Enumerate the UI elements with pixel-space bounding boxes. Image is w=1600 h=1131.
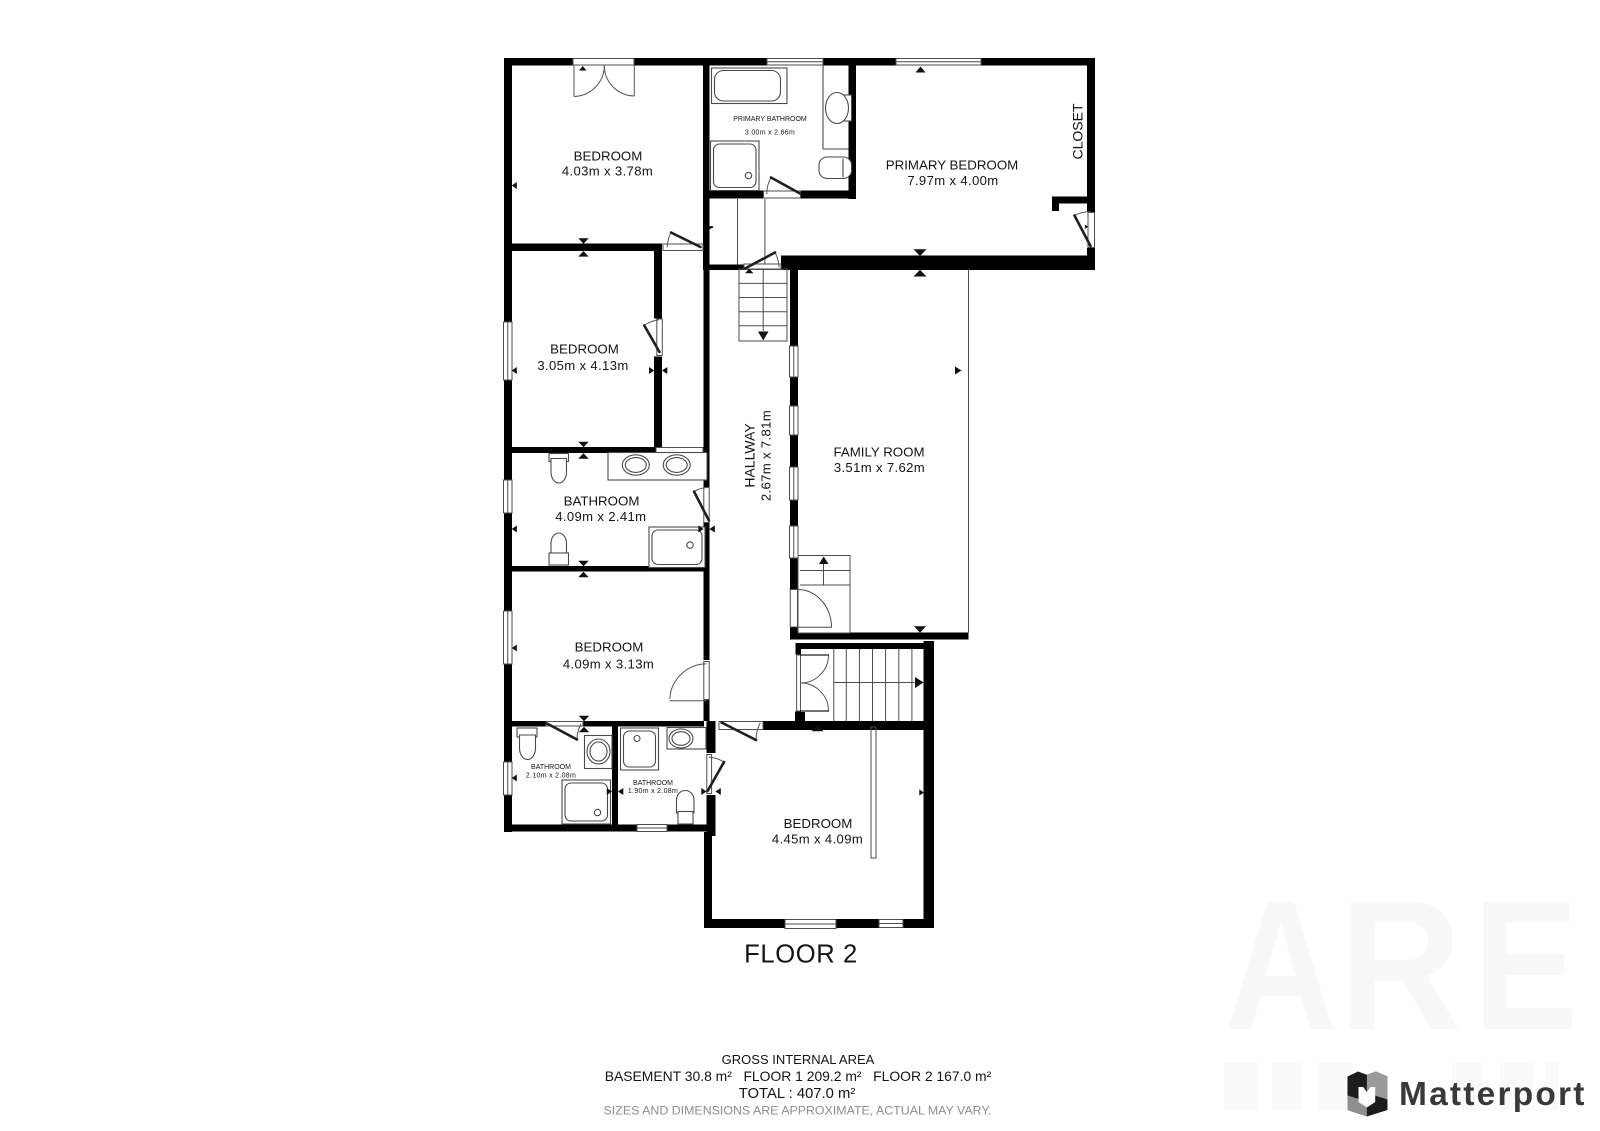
svg-text:BEDROOM: BEDROOM — [574, 149, 643, 164]
svg-text:TOTAL : 407.0 m²: TOTAL : 407.0 m² — [739, 1086, 856, 1102]
svg-text:Matterport: Matterport — [1399, 1076, 1587, 1113]
svg-text:BATHROOM: BATHROOM — [564, 493, 640, 508]
svg-text:BATHROOM: BATHROOM — [531, 764, 571, 771]
svg-text:PRIMARY BATHROOM: PRIMARY BATHROOM — [733, 116, 807, 123]
svg-text:SIZES AND DIMENSIONS ARE APPRO: SIZES AND DIMENSIONS ARE APPROXIMATE, AC… — [604, 1104, 992, 1118]
svg-text:BEDROOM: BEDROOM — [784, 816, 853, 831]
svg-text:BASEMENT 30.8 m² FLOOR 1 209: BASEMENT 30.8 m² FLOOR 1 209.2 m² FLOOR … — [605, 1068, 992, 1084]
svg-text:R: R — [1339, 861, 1462, 1068]
svg-text:4.03m x 3.78m: 4.03m x 3.78m — [562, 164, 653, 179]
svg-text:BEDROOM: BEDROOM — [575, 639, 644, 654]
svg-text:4.45m x 4.09m: 4.45m x 4.09m — [772, 832, 863, 847]
svg-text:3.00m x 2.66m: 3.00m x 2.66m — [745, 130, 795, 137]
svg-text:HALLWAY: HALLWAY — [742, 423, 758, 488]
svg-text:3.05m x 4.13m: 3.05m x 4.13m — [537, 358, 628, 373]
svg-text:E: E — [1473, 863, 1578, 1069]
svg-text:4.09m x 3.13m: 4.09m x 3.13m — [563, 657, 654, 672]
svg-text:GROSS INTERNAL AREA: GROSS INTERNAL AREA — [722, 1052, 875, 1067]
svg-text:BATHROOM: BATHROOM — [633, 780, 673, 787]
svg-text:FLOOR 2: FLOOR 2 — [744, 941, 858, 969]
svg-text:7.97m x 4.00m: 7.97m x 4.00m — [907, 173, 998, 188]
svg-text:PRIMARY BEDROOM: PRIMARY BEDROOM — [886, 158, 1019, 173]
svg-text:CLOSET: CLOSET — [1070, 103, 1086, 159]
svg-text:BEDROOM: BEDROOM — [550, 342, 619, 357]
svg-text:FAMILY ROOM: FAMILY ROOM — [833, 445, 924, 460]
svg-text:3.51m x 7.62m: 3.51m x 7.62m — [834, 460, 925, 475]
svg-text:2.10m x 2.08m: 2.10m x 2.08m — [526, 773, 576, 780]
svg-text:4.09m x 2.41m: 4.09m x 2.41m — [555, 509, 646, 524]
svg-text:A: A — [1225, 862, 1337, 1069]
svg-text:2.67m x 7.81m: 2.67m x 7.81m — [759, 410, 774, 501]
svg-text:1.90m x 2.08m: 1.90m x 2.08m — [628, 788, 678, 795]
